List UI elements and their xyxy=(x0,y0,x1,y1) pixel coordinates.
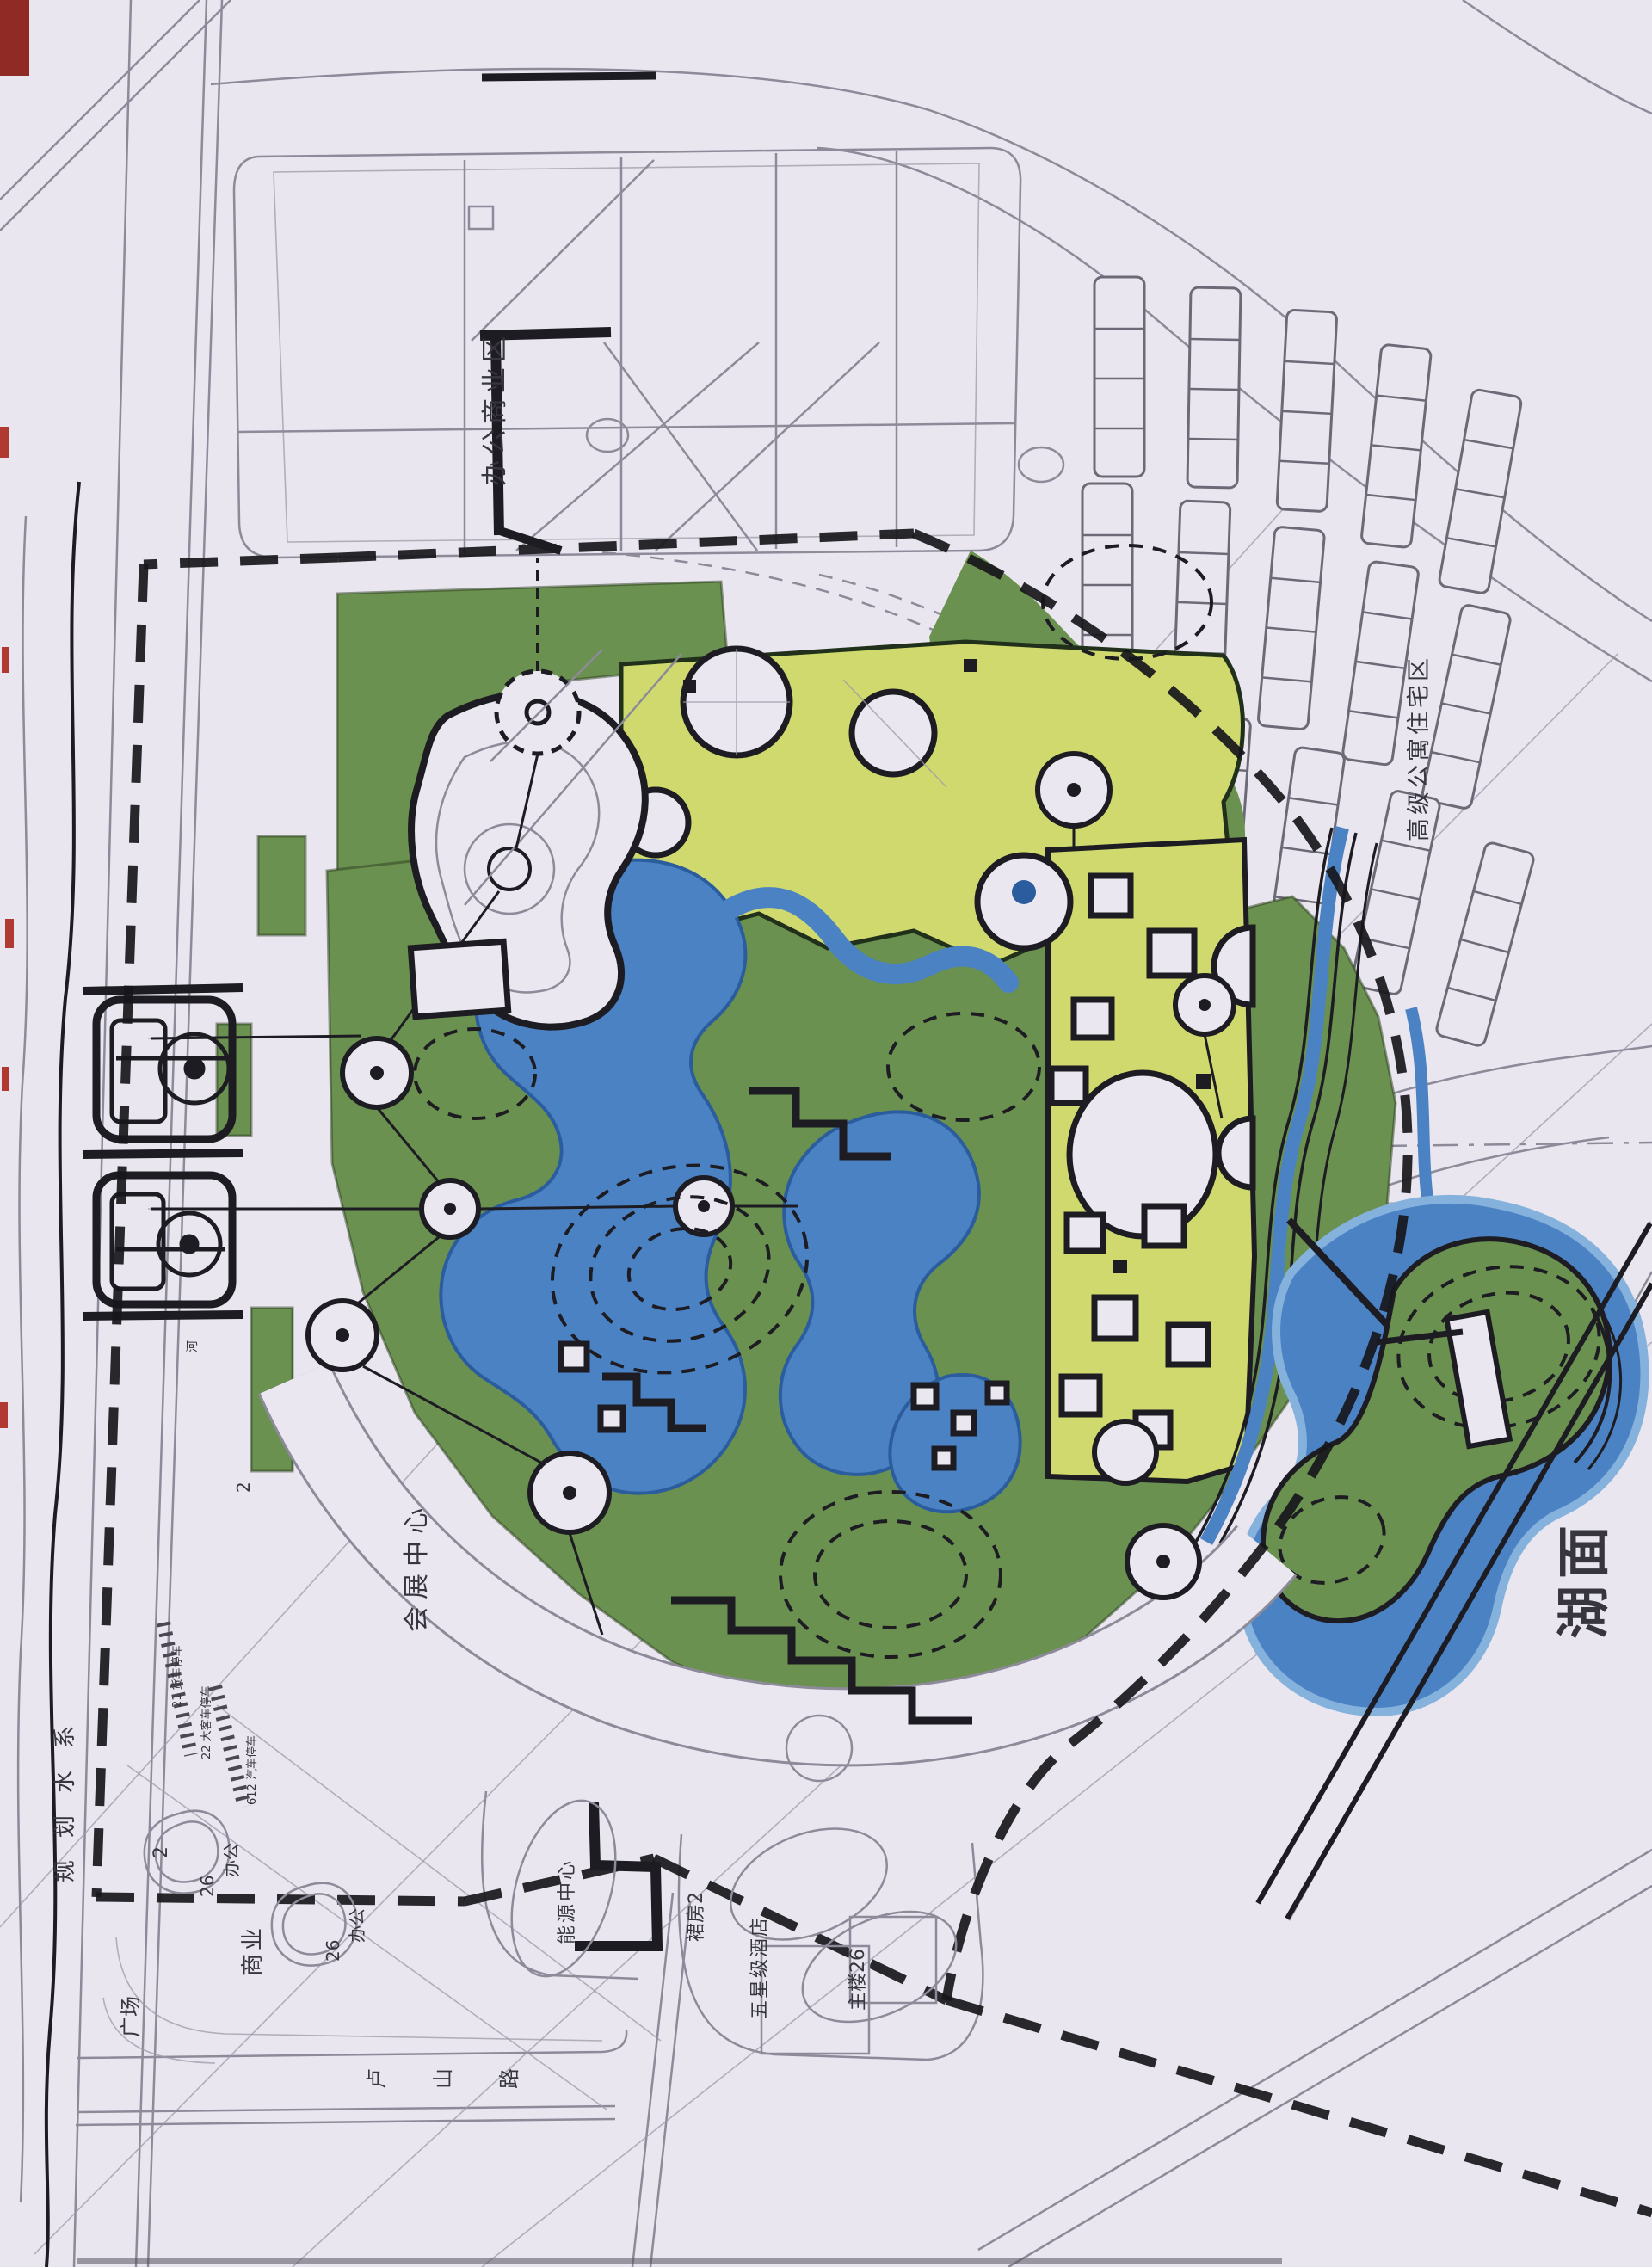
label-lushan-road: 卢山路 xyxy=(365,2068,521,2089)
label-five-star-hotel: 五星级酒店 xyxy=(749,1916,771,2019)
label-energy-center: 能源中心 xyxy=(557,1858,578,1944)
label-premium-apartment-district: 高级公寓住宅区 xyxy=(1406,655,1433,841)
label-commercial: 商业 xyxy=(240,1925,266,1976)
label-river: 河 xyxy=(186,1340,200,1352)
label-parking-cars: 612 汽车停车 xyxy=(245,1735,259,1805)
label-main-tower: 主楼26 xyxy=(848,1949,869,2011)
label-parking-trucks: 21 货车停车 xyxy=(170,1645,184,1708)
label-lot2-a: 2 xyxy=(151,1846,172,1858)
label-parking-buses: 22 大客车停车 xyxy=(200,1685,213,1759)
label-office26a-num: 26 xyxy=(197,1876,218,1897)
label-office-commercial-district: 办公商业区 xyxy=(480,331,510,486)
label-lot2-b: 2 xyxy=(233,1482,254,1493)
label-hotel-podium: 裙房2 xyxy=(686,1892,707,1942)
site-plan-scan: 办公商业区 高级公寓住宅区 湖面 会展中心 规划水系 商业 广场 卢山路 26 … xyxy=(0,0,1652,2267)
label-office26b-num: 26 xyxy=(323,1940,343,1962)
label-office26a-text: 办公 xyxy=(221,1843,242,1877)
master-plan-drawing: 办公商业区 高级公寓住宅区 湖面 会展中心 规划水系 商业 广场 卢山路 26 … xyxy=(0,0,1652,2267)
label-office26b-text: 办公 xyxy=(347,1908,367,1943)
label-planned-water-system: 规划水系 xyxy=(52,1703,78,1882)
label-plaza: 广场 xyxy=(119,1996,143,2037)
label-lake-surface: 湖面 xyxy=(1552,1519,1615,1639)
label-exhibition-center: 会展中心 xyxy=(402,1501,432,1632)
